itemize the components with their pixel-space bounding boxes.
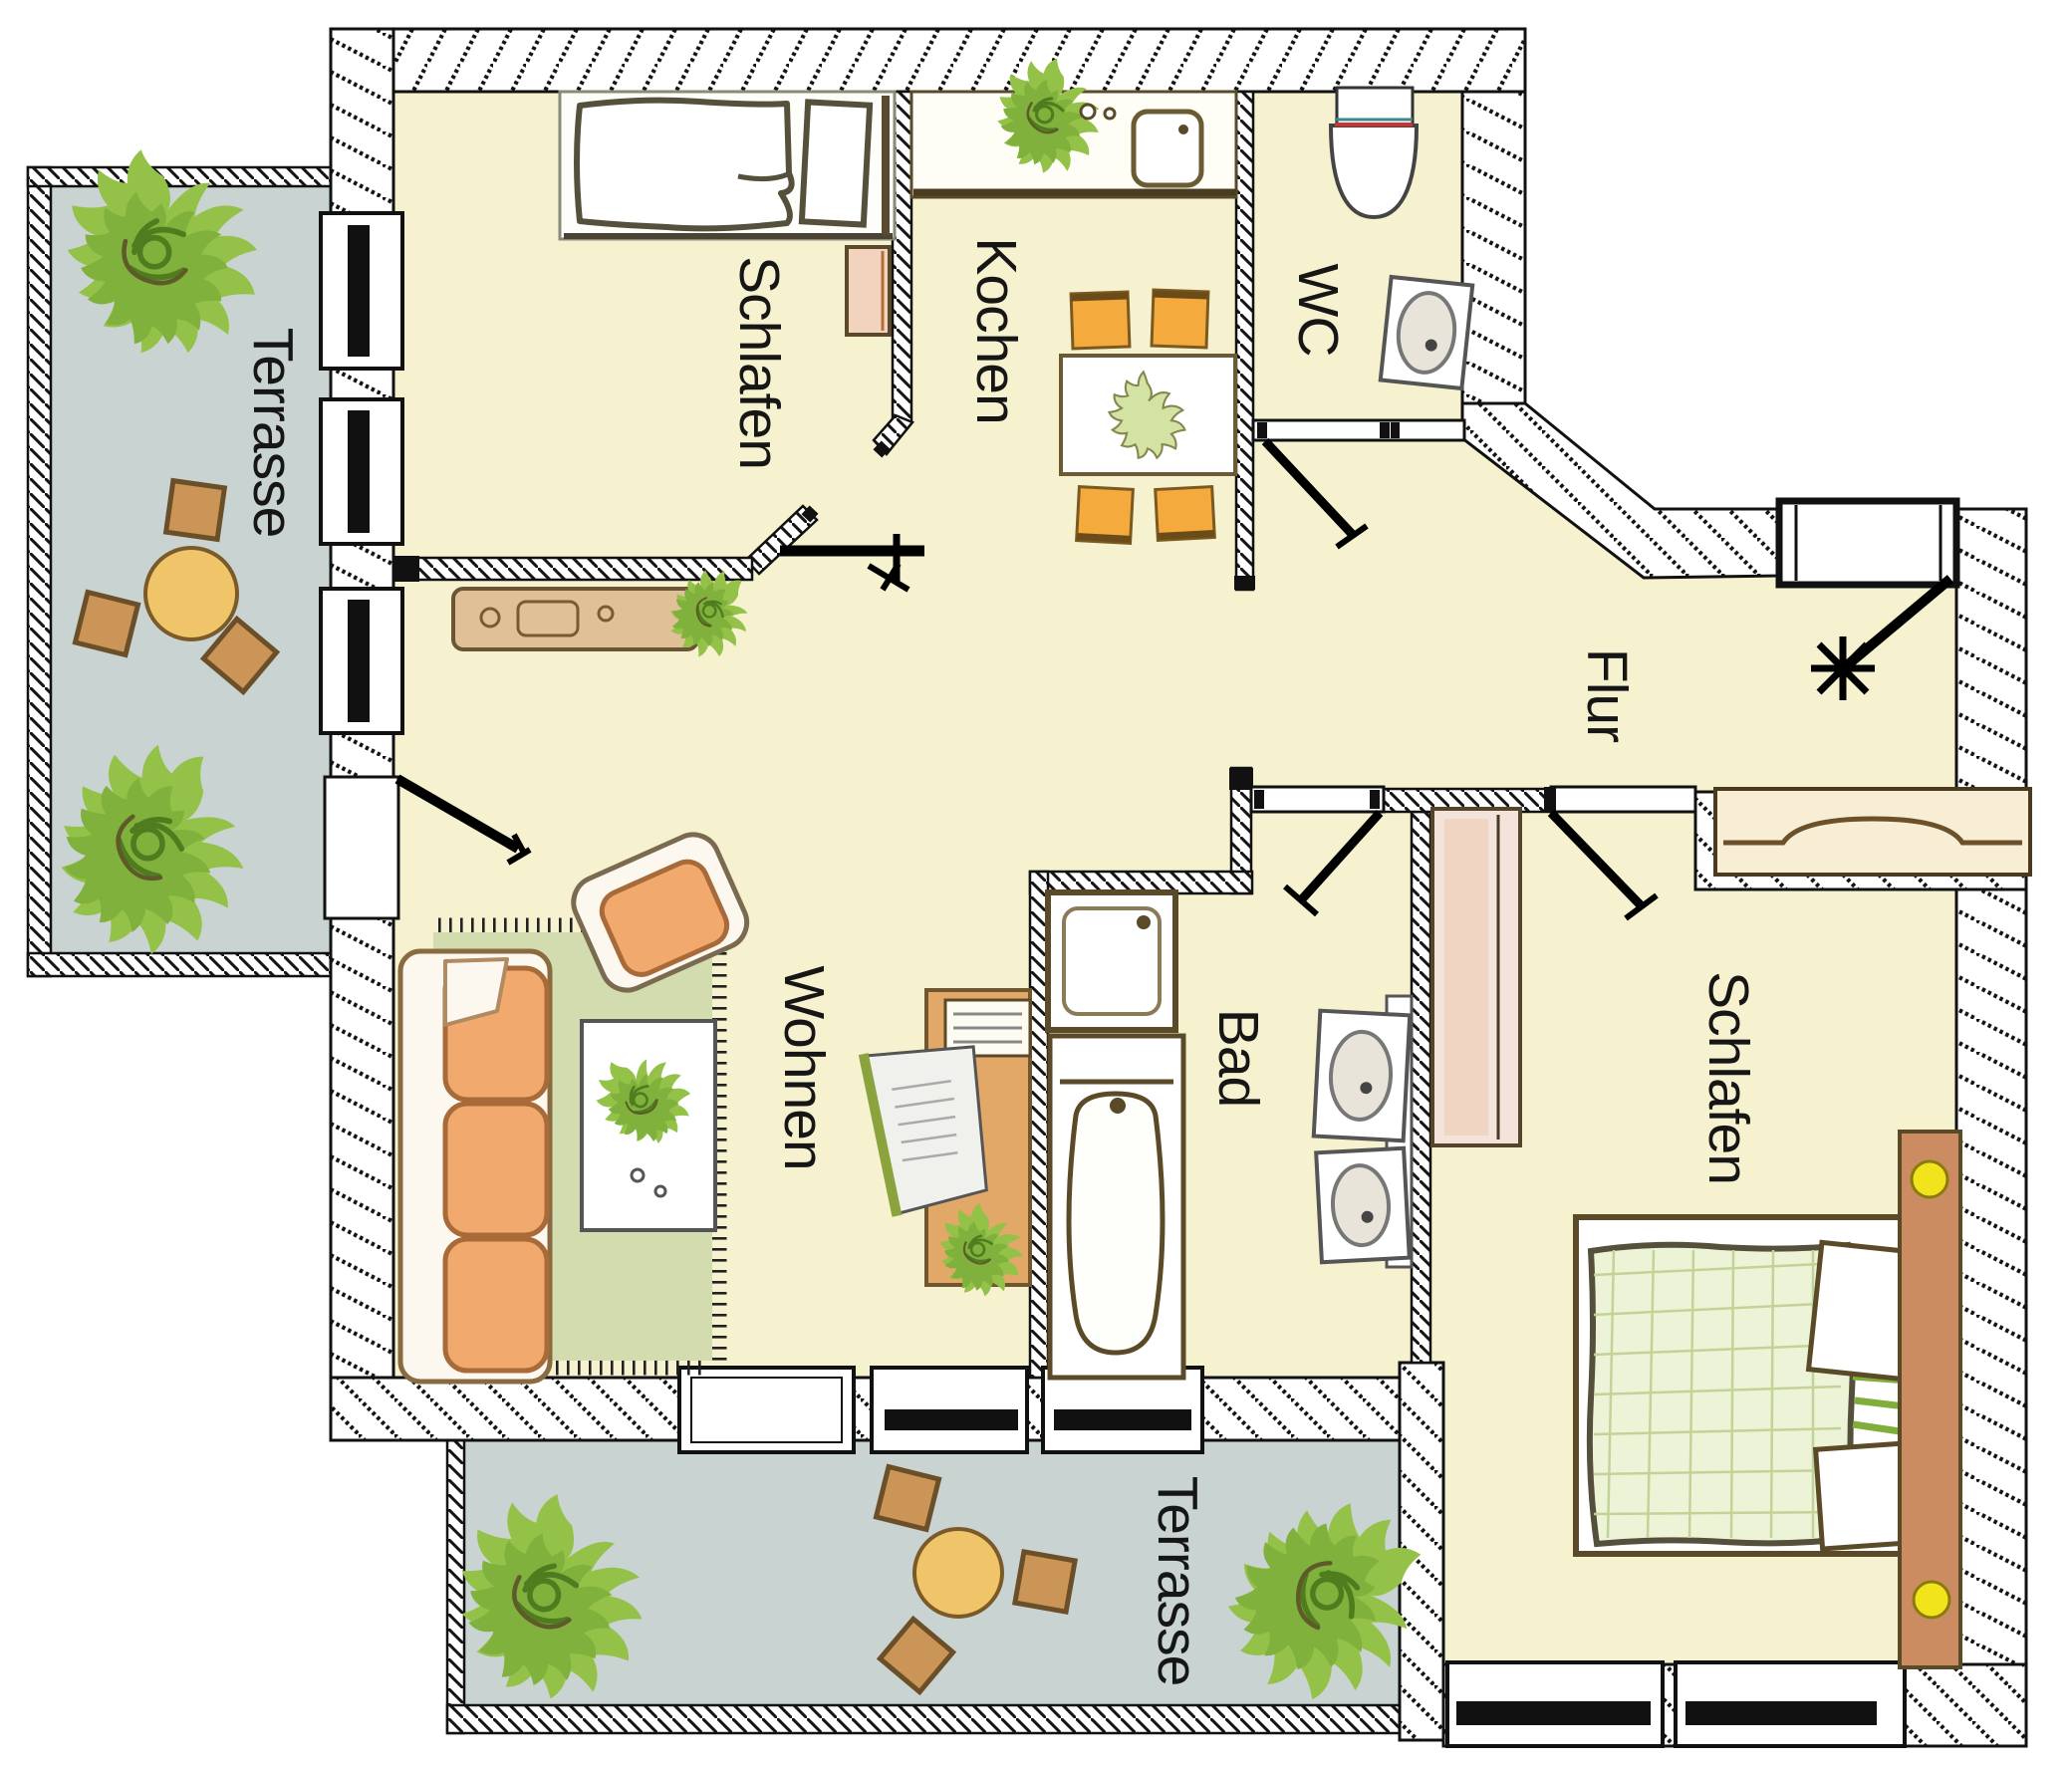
svg-text:Kochen: Kochen (964, 237, 1028, 423)
svg-text:Wohnen: Wohnen (772, 965, 836, 1169)
svg-text:Flur: Flur (1575, 648, 1639, 743)
svg-text:Schlafen: Schlafen (1696, 971, 1760, 1184)
svg-text:Bad: Bad (1206, 1009, 1270, 1107)
svg-text:Terrasse: Terrasse (241, 328, 305, 538)
svg-text:Terrasse: Terrasse (1146, 1476, 1209, 1686)
svg-text:WC: WC (1286, 264, 1350, 357)
svg-text:Schlafen: Schlafen (727, 256, 791, 469)
